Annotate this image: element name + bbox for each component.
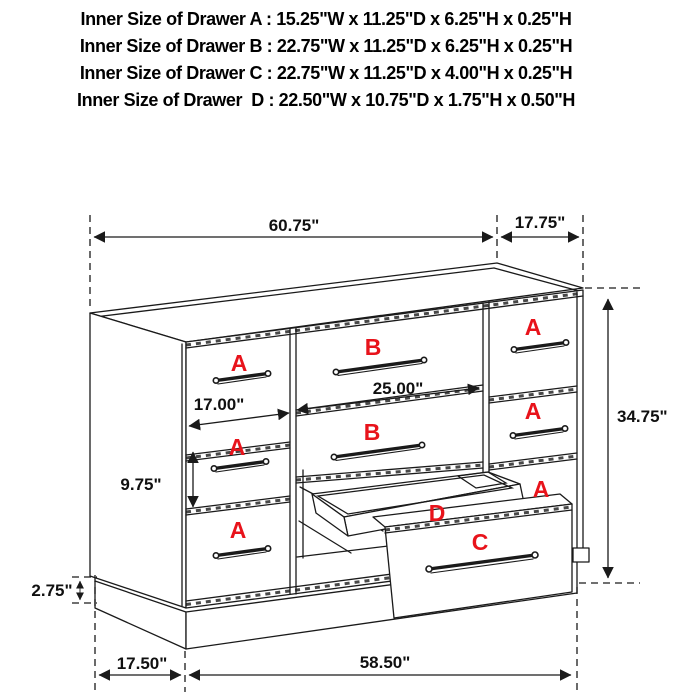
- label-drawer-b-top: B: [365, 334, 382, 360]
- right-foot: [573, 548, 589, 562]
- dim-label-top-depth: 17.75": [515, 213, 566, 232]
- label-drawer-b-second: B: [364, 419, 381, 445]
- label-drawer-a-right-middle: A: [525, 398, 542, 424]
- label-drawer-d: D: [429, 500, 446, 526]
- dim-label-base-side-depth: 17.50": [117, 654, 168, 673]
- dim-label-top-width: 60.75": [269, 216, 320, 235]
- dim-label-base-height: 2.75": [31, 581, 72, 600]
- label-drawer-a-left-middle: A: [229, 434, 246, 460]
- dim-label-drawer-a-height: 9.75": [120, 475, 161, 494]
- dim-label-drawer-a-width: 17.00": [194, 395, 245, 414]
- dresser-dimension-diagram: Inner Size of Drawer A : 15.25"W x 11.25…: [0, 0, 700, 700]
- dim-label-drawer-b-width: 25.00": [373, 379, 424, 398]
- dim-label-overall-height: 34.75": [617, 407, 668, 426]
- label-drawer-a-right-bottom: A: [533, 476, 550, 502]
- dresser-line-drawing: A A A B B A A A D C: [0, 0, 700, 700]
- label-drawer-a-left-top: A: [231, 350, 248, 376]
- label-drawer-c: C: [472, 529, 489, 555]
- label-drawer-a-left-bottom: A: [230, 517, 247, 543]
- cabinet-left-side: [90, 313, 186, 608]
- label-drawer-a-right-top: A: [525, 314, 542, 340]
- dim-label-base-front-width: 58.50": [360, 653, 411, 672]
